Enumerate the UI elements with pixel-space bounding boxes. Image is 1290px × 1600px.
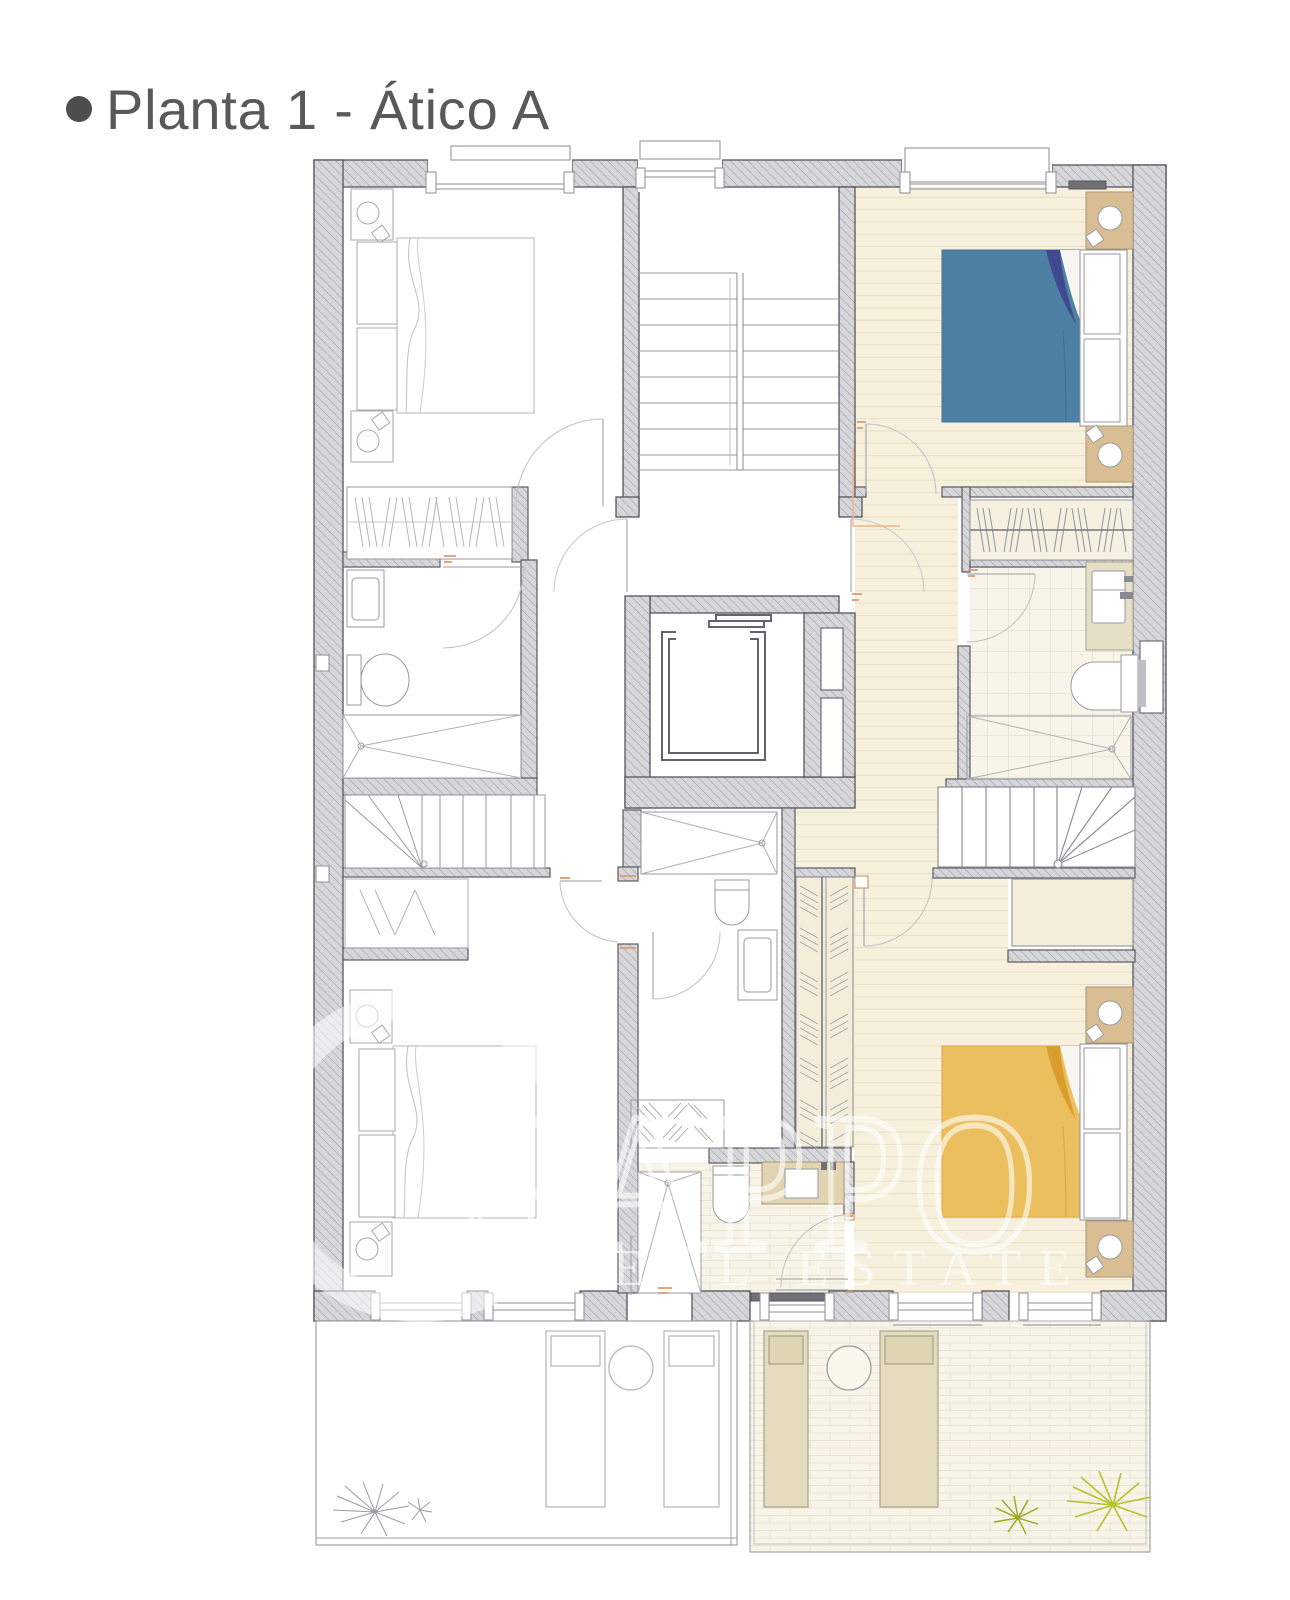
svg-text:REAL ESTATE: REAL ESTATE <box>560 1240 1088 1297</box>
svg-text:Planta 1 - Ático A: Planta 1 - Ático A <box>106 78 550 141</box>
